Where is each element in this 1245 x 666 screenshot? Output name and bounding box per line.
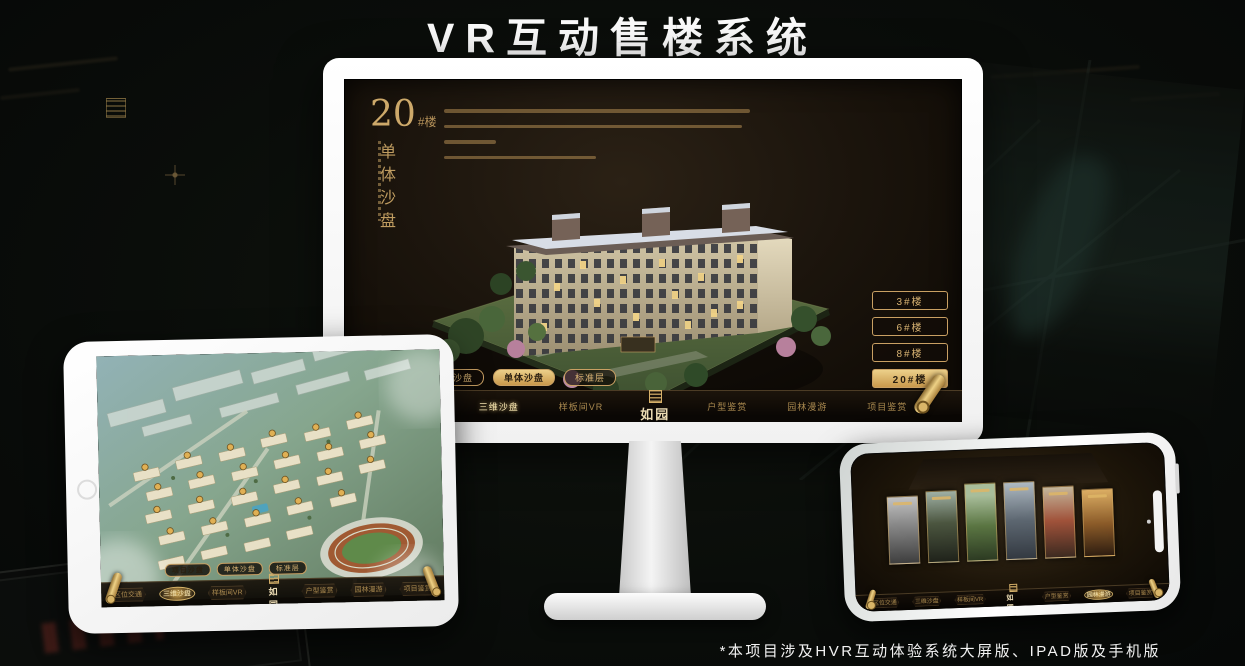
monitor-stand-neck bbox=[619, 441, 691, 597]
nav-group-right: 户型鉴赏园林漫游项目鉴赏 bbox=[301, 581, 435, 598]
floor-button[interactable]: 3#楼 bbox=[872, 291, 948, 310]
tablet-screen: 项目沙盘单体沙盘标准层 区位交通三维沙盘样板间VR 如园 户型鉴赏园林漫游项目鉴… bbox=[96, 349, 444, 607]
footnote-text: *本项目涉及HVR互动体验系统大屏版、IPAD版及手机版 bbox=[720, 640, 1161, 661]
nav-item[interactable]: 园林漫游 bbox=[780, 397, 834, 416]
nav-group-right: 户型鉴赏园林漫游项目鉴赏 bbox=[700, 397, 914, 416]
tablet-device: 项目沙盘单体沙盘标准层 区位交通三维沙盘样板间VR 如园 户型鉴赏园林漫游项目鉴… bbox=[63, 334, 459, 634]
building-number: 20 bbox=[370, 94, 416, 135]
subtab[interactable]: 标准层 bbox=[564, 369, 616, 386]
phone-screen: 区位交通三维沙盘样板间VR 如园 户型鉴赏园林漫游项目鉴赏 bbox=[850, 442, 1170, 612]
nav-item[interactable]: 三维沙盘 bbox=[472, 397, 526, 416]
description-line bbox=[444, 140, 496, 144]
gallery-card-garden[interactable] bbox=[964, 483, 998, 562]
card-caption bbox=[1009, 487, 1028, 491]
tablet-home-button[interactable] bbox=[77, 479, 97, 499]
nav-item[interactable]: 项目鉴赏 bbox=[860, 397, 914, 416]
nav-group-left: 区位交通三维沙盘样板间VR bbox=[868, 593, 989, 610]
nav-item[interactable]: 样板间VR bbox=[954, 594, 986, 605]
nav-group-right: 户型鉴赏园林漫游项目鉴赏 bbox=[1039, 586, 1157, 603]
floor-button[interactable]: 6#楼 bbox=[872, 317, 948, 336]
card-caption bbox=[1049, 492, 1068, 496]
bg-compass-mark bbox=[168, 168, 182, 182]
nav-item[interactable]: 园林漫游 bbox=[350, 582, 386, 597]
gallery-card-pavilion[interactable] bbox=[926, 490, 960, 563]
phone-side-button[interactable] bbox=[1175, 463, 1180, 493]
floor-button[interactable]: 8#楼 bbox=[872, 343, 948, 362]
scene-gallery bbox=[886, 478, 1115, 565]
brand-name: 如园 bbox=[268, 584, 280, 607]
phone-navbar: 区位交通三维沙盘样板间VR 如园 户型鉴赏园林漫游项目鉴赏 bbox=[855, 583, 1169, 612]
card-caption bbox=[1088, 494, 1107, 498]
bg-river-shape bbox=[992, 145, 1123, 347]
subtab[interactable]: 单体沙盘 bbox=[217, 562, 263, 576]
gallery-card-courtyard[interactable] bbox=[887, 496, 921, 565]
subtab[interactable]: 标准层 bbox=[269, 561, 307, 575]
gallery-card-building[interactable] bbox=[1003, 481, 1037, 560]
brand-seal-icon bbox=[1010, 583, 1018, 591]
phone-camera-icon bbox=[1147, 520, 1151, 524]
brand-logo: 如园 bbox=[1006, 583, 1022, 612]
nav-item[interactable]: 园林漫游 bbox=[1084, 589, 1113, 600]
subtab[interactable]: 项目沙盘 bbox=[165, 563, 211, 577]
card-caption bbox=[893, 502, 912, 506]
brand-logo: 如园 bbox=[640, 390, 670, 422]
brand-name: 如园 bbox=[1006, 592, 1022, 612]
subtab[interactable]: 单体沙盘 bbox=[493, 369, 555, 386]
nav-item[interactable]: 样板间VR bbox=[552, 397, 611, 416]
brand-name: 如园 bbox=[640, 404, 670, 422]
brand-seal-icon bbox=[649, 390, 662, 403]
nav-item[interactable]: 三维沙盘 bbox=[159, 586, 195, 601]
heading-english-caption bbox=[378, 141, 381, 221]
nav-item[interactable]: 三维沙盘 bbox=[912, 596, 941, 607]
page-title: VR互动售楼系统 bbox=[0, 4, 1245, 64]
phone-notch bbox=[1153, 490, 1164, 552]
nav-item[interactable]: 户型鉴赏 bbox=[700, 397, 754, 416]
brand-logo: 如园 bbox=[268, 573, 280, 607]
bg-gold-text-row bbox=[0, 88, 80, 100]
bg-gold-text-row bbox=[990, 65, 1140, 79]
nav-item[interactable]: 户型鉴赏 bbox=[1042, 591, 1071, 602]
bg-gold-text-row bbox=[1130, 92, 1220, 102]
description-line bbox=[444, 109, 750, 113]
nav-item[interactable]: 样板间VR bbox=[208, 585, 247, 600]
nav-group-left: 区位交通三维沙盘样板间VR bbox=[110, 585, 247, 602]
card-caption bbox=[970, 489, 989, 493]
bg-gold-logo-chip bbox=[106, 98, 126, 118]
gallery-card-interior[interactable] bbox=[1082, 488, 1116, 557]
gallery-card-autumn[interactable] bbox=[1042, 486, 1076, 559]
card-caption bbox=[932, 496, 951, 500]
phone-device: 区位交通三维沙盘样板间VR 如园 户型鉴赏园林漫游项目鉴赏 bbox=[839, 432, 1182, 623]
monitor-stand-base bbox=[544, 593, 766, 620]
building-number-suffix: #楼 bbox=[418, 115, 437, 129]
nav-item[interactable]: 户型鉴赏 bbox=[301, 583, 337, 598]
bg-aerial-photo bbox=[945, 62, 1245, 438]
description-line bbox=[444, 125, 742, 129]
promo-canvas: VR互动售楼系统 20#楼 单体沙盘 bbox=[0, 0, 1245, 666]
